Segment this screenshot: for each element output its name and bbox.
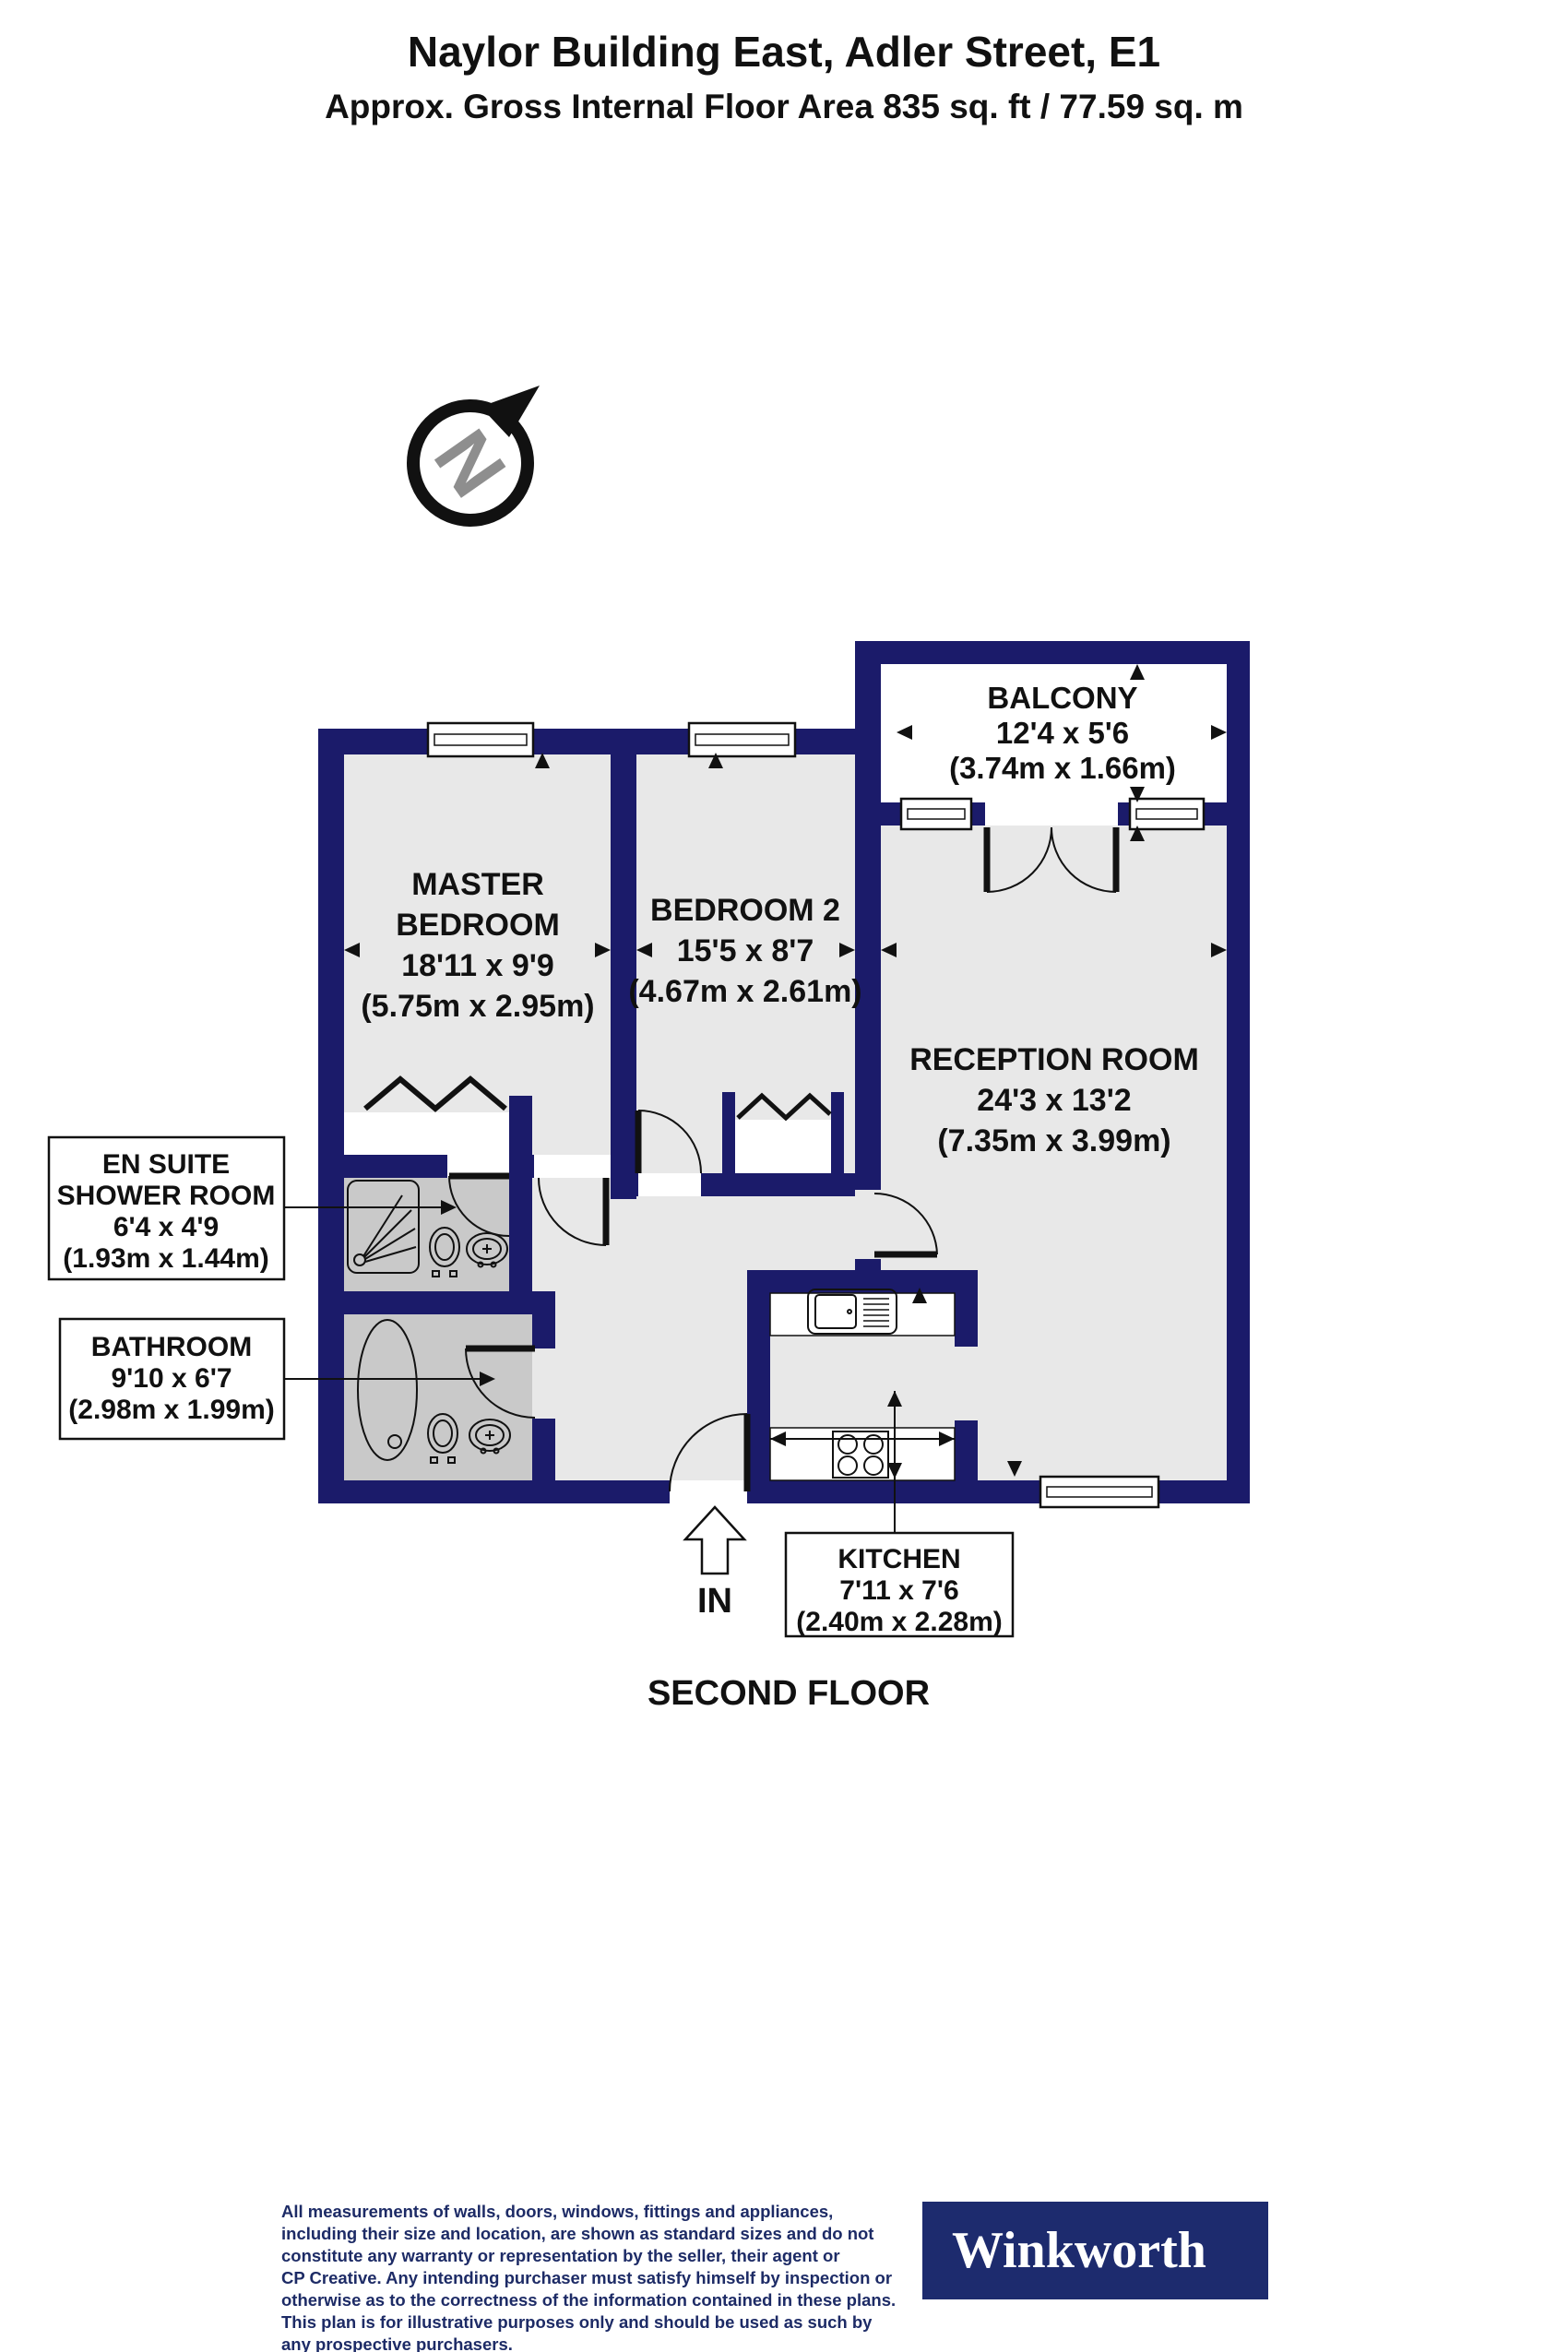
- reception-imperial: 24'3 x 13'2: [977, 1083, 1131, 1118]
- master-imperial: 18'11 x 9'9: [401, 948, 554, 983]
- wall-closet-left: [722, 1092, 735, 1177]
- bedroom2-imperial: 15'5 x 8'7: [677, 933, 814, 968]
- bathroom-name: BATHROOM: [91, 1332, 252, 1362]
- kitchen-metric: (2.40m x 2.28m): [796, 1607, 1002, 1637]
- opening-balcony-doors: [985, 802, 1118, 826]
- reception-metric: (7.35m x 3.99m): [937, 1123, 1170, 1158]
- disclaimer-line: any prospective purchasers.: [281, 2334, 513, 2352]
- balcony-metric: (3.74m x 1.66m): [949, 751, 1176, 785]
- wall-ensuite-east: [509, 1096, 532, 1291]
- disclaimer-line: This plan is for illustrative purposes o…: [281, 2312, 873, 2332]
- window-balcony-left: [901, 799, 971, 829]
- disclaimer-line: All measurements of walls, doors, window…: [281, 2202, 833, 2221]
- bathroom-imperial: 9'10 x 6'7: [111, 1363, 232, 1394]
- floor-label: SECOND FLOOR: [647, 1674, 930, 1713]
- disclaimer-line: otherwise as to the correctness of the i…: [281, 2290, 896, 2310]
- kitchen-imperial: 7'11 x 7'6: [839, 1575, 958, 1606]
- wall-kitchen-right-a: [955, 1293, 978, 1347]
- wall-kitchen-right-b: [955, 1420, 978, 1480]
- winkworth-logo: Winkworth: [922, 2202, 1268, 2299]
- label-box-bathroom: BATHROOM 9'10 x 6'7 (2.98m x 1.99m): [60, 1319, 284, 1439]
- wall-balcony-top: [855, 641, 1250, 664]
- disclaimer-line: constitute any warranty or representatio…: [281, 2246, 840, 2265]
- disclaimer-line: CP Creative. Any intending purchaser mus…: [281, 2268, 892, 2287]
- ensuite-metric: (1.93m x 1.44m): [63, 1243, 268, 1274]
- balcony-imperial: 12'4 x 5'6: [996, 716, 1129, 750]
- disclaimer: All measurements of walls, doors, window…: [281, 2202, 896, 2352]
- bedroom2-name: BEDROOM 2: [650, 893, 840, 928]
- bathroom-metric: (2.98m x 1.99m): [68, 1395, 274, 1425]
- balcony-name: BALCONY: [987, 681, 1137, 715]
- label-box-kitchen: KITCHEN 7'11 x 7'6 (2.40m x 2.28m): [786, 1533, 1013, 1637]
- page-subtitle: Approx. Gross Internal Floor Area 835 sq…: [325, 88, 1243, 125]
- wall-bathroom-east-a: [532, 1314, 555, 1348]
- window-reception-bottom: [1040, 1477, 1158, 1507]
- floorplan-canvas: Naylor Building East, Adler Street, E1 A…: [0, 0, 1568, 2352]
- wall-bathroom-east-b: [532, 1419, 555, 1480]
- window-bedroom2: [689, 723, 795, 756]
- floor-bathroom: [344, 1314, 532, 1480]
- master-name1: MASTER: [411, 867, 544, 902]
- disclaimer-line: including their size and location, are s…: [281, 2224, 873, 2243]
- entrance-label: IN: [697, 1582, 732, 1621]
- opening-entrance: [670, 1480, 747, 1503]
- ensuite-name1: EN SUITE: [102, 1149, 230, 1180]
- wall-bed2-reception: [855, 641, 881, 1190]
- compass-icon: N: [413, 386, 540, 520]
- reception-name: RECEPTION ROOM: [909, 1042, 1199, 1077]
- ensuite-imperial: 6'4 x 4'9: [113, 1212, 219, 1242]
- wall-kitchen-left: [747, 1293, 770, 1480]
- shower-tray: [348, 1181, 419, 1273]
- entrance-arrow-icon: [685, 1507, 744, 1574]
- page-title: Naylor Building East, Adler Street, E1: [408, 28, 1160, 76]
- window-master: [428, 723, 533, 756]
- master-metric: (5.75m x 2.95m): [361, 989, 594, 1024]
- wardrobe-interior-bedroom2: [735, 1120, 831, 1173]
- logo-text: Winkworth: [952, 2222, 1206, 2279]
- wall-right-outer: [1227, 664, 1250, 1503]
- opening-bedroom2: [638, 1173, 701, 1196]
- wall-bedrooms-top: [318, 729, 881, 754]
- floorplan-page: Naylor Building East, Adler Street, E1 A…: [0, 0, 1568, 2352]
- wall-ensuite-bathroom: [318, 1291, 555, 1314]
- bedroom2-metric: (4.67m x 2.61m): [628, 974, 861, 1009]
- kitchen-counter-bottom: [770, 1428, 955, 1480]
- wall-left-outer: [318, 729, 344, 1503]
- kitchen-name: KITCHEN: [837, 1544, 960, 1574]
- master-name2: BEDROOM: [396, 908, 560, 943]
- ensuite-name2: SHOWER ROOM: [57, 1181, 276, 1211]
- wardrobe-interior-master: [344, 1112, 509, 1155]
- label-box-ensuite: EN SUITE SHOWER ROOM 6'4 x 4'9 (1.93m x …: [49, 1137, 284, 1279]
- kitchen-counter-top: [770, 1293, 955, 1336]
- wall-closet-right: [831, 1092, 844, 1177]
- opening-master: [534, 1155, 611, 1178]
- window-balcony-right: [1130, 799, 1204, 829]
